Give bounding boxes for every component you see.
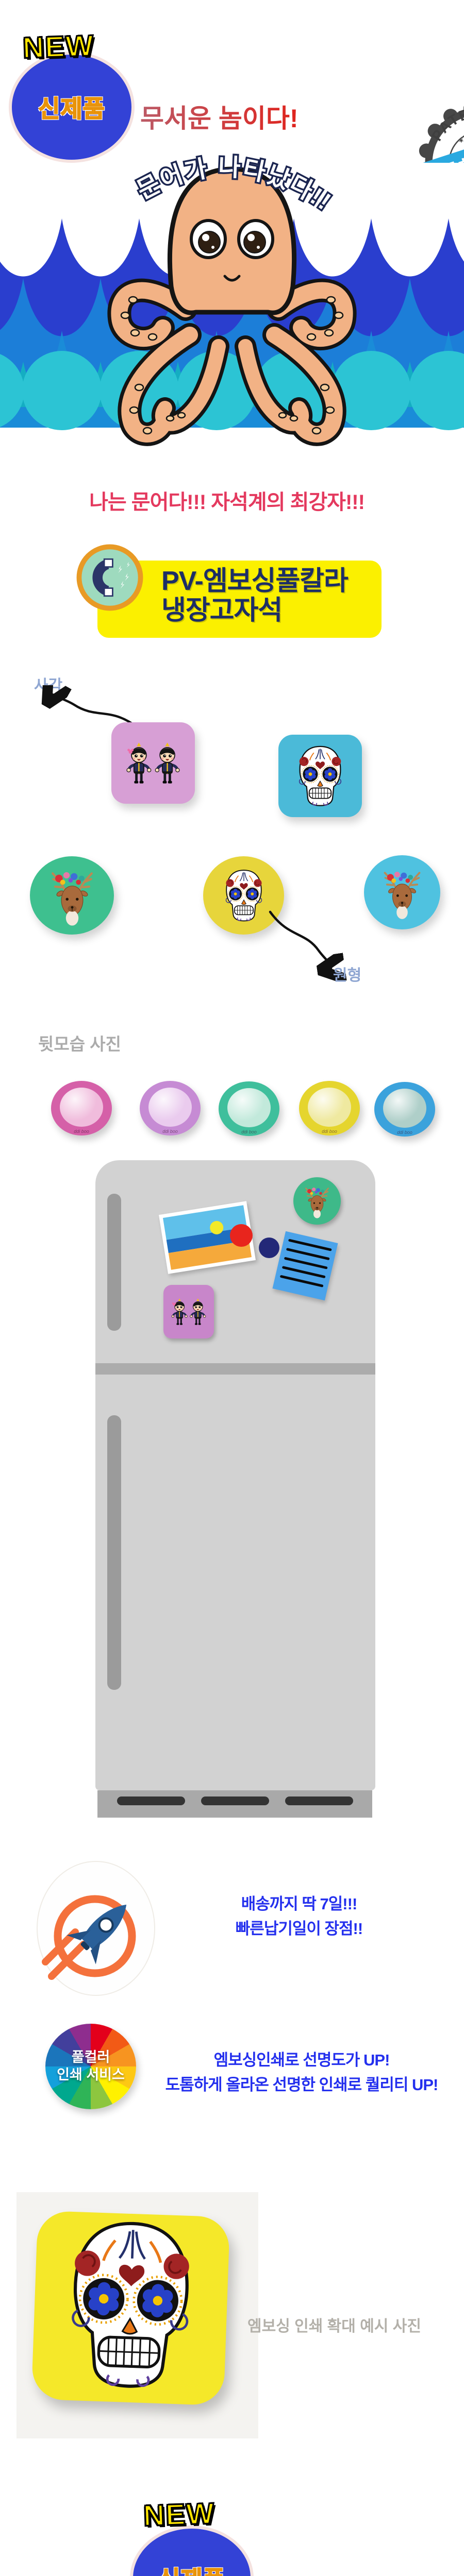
back-magnet-pink: ddi boo xyxy=(51,1081,112,1136)
brand-mark: ddi boo xyxy=(374,1130,435,1135)
back-magnet-blue: ddi boo xyxy=(374,1082,435,1137)
brand-mark: ddi boo xyxy=(299,1129,360,1134)
octopus-slogan: 나는 문어다!!! 자석계의 최강자!!! xyxy=(41,485,412,515)
fridge-handle-top xyxy=(107,1194,121,1331)
magnet-icon xyxy=(76,544,143,611)
new-badge-text: NEW xyxy=(22,29,95,65)
back-magnet-yellow: ddi boo xyxy=(299,1081,360,1136)
wheel-line2: 인쇄 서비스 xyxy=(57,2066,125,2084)
new-badge-text: NEW xyxy=(143,2497,216,2533)
pink-square-magnet xyxy=(111,722,195,804)
printing-text: 엠보싱인쇄로 선명도가 UP! 도톰하게 올라온 선명한 인쇄로 퀄리티 UP! xyxy=(150,2048,454,2097)
back-magnet-green: ddi boo xyxy=(219,1081,279,1136)
scary-headline: 무서운 놈이다! xyxy=(140,98,336,135)
product-title: PV-엠보싱풀칼라 냉장고자석 xyxy=(161,567,378,625)
new-product-badge: 신제품 xyxy=(9,52,135,163)
fridge-deer-magnet xyxy=(293,1177,341,1225)
closeup-caption: 엠보싱 인쇄 확대 예시 사진 xyxy=(247,2313,443,2336)
product-detail-page: 문어가 나타났다!! NEW 신제품 무서운 놈이다! 나는 문어다!!! 자석… xyxy=(0,0,464,2576)
round-shape-label: 원형 xyxy=(333,962,361,985)
new-product-badge: 신제품 xyxy=(130,2526,254,2576)
product-title-line1: PV-엠보싱풀칼라 xyxy=(161,567,378,596)
brand-mark: ddi boo xyxy=(51,1129,112,1134)
brand-mark: ddi boo xyxy=(219,1129,279,1134)
patent-stamp xyxy=(257,2495,401,2576)
fridge-door-divider xyxy=(95,1363,375,1375)
fridge-navy-dot-magnet xyxy=(259,1238,279,1258)
green-round-deer-magnet xyxy=(30,856,114,935)
brand-mark: ddi boo xyxy=(140,1129,201,1134)
wheel-line1: 풀컬러 xyxy=(72,2049,110,2066)
fridge-vent xyxy=(117,1797,185,1805)
fridge-vent xyxy=(201,1797,269,1805)
fridge-red-dot-magnet xyxy=(230,1224,253,1247)
shipping-line2: 빠른납기일이 장점!! xyxy=(201,1917,397,1941)
color-wheel-icon: 풀컬러 인쇄 서비스 xyxy=(45,2024,136,2109)
product-title-line2: 냉장고자석 xyxy=(161,596,378,625)
fridge-base xyxy=(97,1790,372,1818)
closeup-yellow-skull-magnet xyxy=(31,2211,230,2406)
back-magnet-purple: ddi boo xyxy=(140,1081,201,1136)
rocket-icon xyxy=(34,1859,158,1998)
shipping-line1: 배송까지 딱 7일!!! xyxy=(201,1892,397,1917)
printing-line2: 도톰하게 올라온 선명한 인쇄로 퀄리티 UP! xyxy=(150,2073,454,2097)
blue-round-deer-magnet xyxy=(364,855,440,929)
back-view-title: 뒷모습 사진 xyxy=(38,1030,121,1055)
blue-square-skull-magnet xyxy=(278,735,362,817)
fridge-vent xyxy=(285,1797,353,1805)
color-wheel-label: 풀컬러 인쇄 서비스 xyxy=(45,2024,136,2109)
new-badge-korean-label: 신제품 xyxy=(158,2561,225,2576)
shipping-text: 배송까지 딱 7일!!! 빠른납기일이 장점!! xyxy=(201,1892,397,1941)
fridge-police-magnet xyxy=(163,1285,214,1338)
printing-line1: 엠보싱인쇄로 선명도가 UP! xyxy=(150,2048,454,2073)
fridge-handle-bottom xyxy=(107,1415,121,1690)
new-badge-korean-label: 신제품 xyxy=(38,90,105,124)
